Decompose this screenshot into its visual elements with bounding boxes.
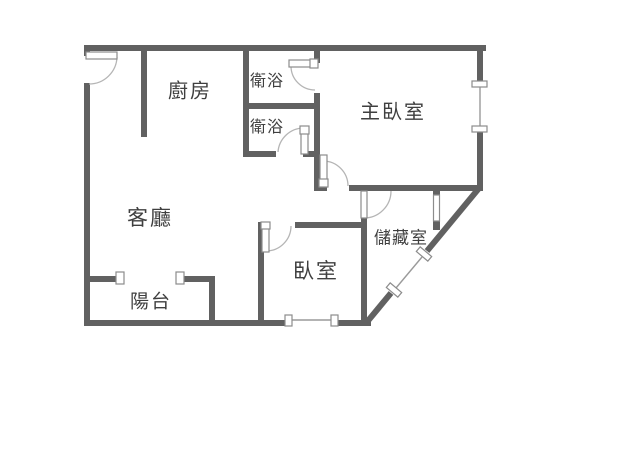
master-bedroom-door	[319, 155, 348, 187]
door-post-icon	[176, 272, 184, 284]
room-label-balcony: 陽台	[130, 287, 172, 314]
door-hinge-post	[310, 59, 318, 68]
room-label-living-room: 客廳	[127, 202, 173, 232]
room-label-master-bedroom: 主臥室	[360, 96, 426, 125]
door-leaf-icon	[361, 191, 367, 218]
door-hinge-post	[300, 126, 309, 134]
bath-upper-door	[289, 59, 318, 90]
storage-wall-left	[361, 218, 367, 326]
balcony-wall-right	[209, 276, 215, 326]
wall-diagonal-lower	[367, 293, 391, 322]
room-label-bath-upper: 衛浴	[250, 67, 284, 91]
door-leaf-icon	[86, 52, 117, 59]
bedroom-window	[285, 315, 338, 326]
bedroom-door	[261, 222, 291, 252]
bedroom-wall-top-b	[295, 222, 367, 228]
floor-plan: 廚房 衛浴 衛浴 主臥室 客廳 臥室 儲藏室 陽台	[0, 0, 640, 461]
entrance-door	[86, 52, 117, 84]
bath-wall-left	[243, 48, 249, 156]
wall-bottom-left	[84, 320, 286, 326]
wall-right-lower	[477, 132, 483, 189]
window-post-icon	[285, 315, 292, 326]
door-hinge-post	[319, 179, 328, 187]
diagonal-window	[386, 247, 431, 297]
storage-partition-stub-top	[433, 188, 440, 195]
door-hinge-post	[261, 222, 270, 229]
wall-left	[84, 83, 90, 326]
bath-wall-right	[314, 93, 320, 191]
kitchen-wall	[141, 48, 147, 137]
room-label-bedroom: 臥室	[293, 255, 339, 285]
storage-door	[361, 191, 391, 218]
master-south-wall-b	[349, 185, 483, 191]
bath-wall-divider	[243, 103, 320, 109]
master-window	[472, 81, 487, 132]
balcony-wall-a	[84, 276, 117, 282]
balcony-opening	[116, 272, 184, 284]
room-label-storage: 儲藏室	[374, 224, 428, 249]
storage-partition-window	[434, 195, 440, 221]
window-cap-icon	[472, 81, 487, 87]
floor-plan-drawing	[0, 0, 640, 461]
room-label-bath-lower: 衛浴	[250, 113, 284, 137]
door-leaf-icon	[262, 226, 269, 252]
window-cap-icon	[472, 126, 487, 132]
window-post-icon	[331, 315, 338, 326]
room-label-kitchen: 廚房	[168, 75, 212, 104]
storage-partition-stub-bottom	[433, 221, 440, 230]
bath-wall-bottom-a	[243, 151, 276, 157]
door-post-icon	[116, 272, 124, 284]
